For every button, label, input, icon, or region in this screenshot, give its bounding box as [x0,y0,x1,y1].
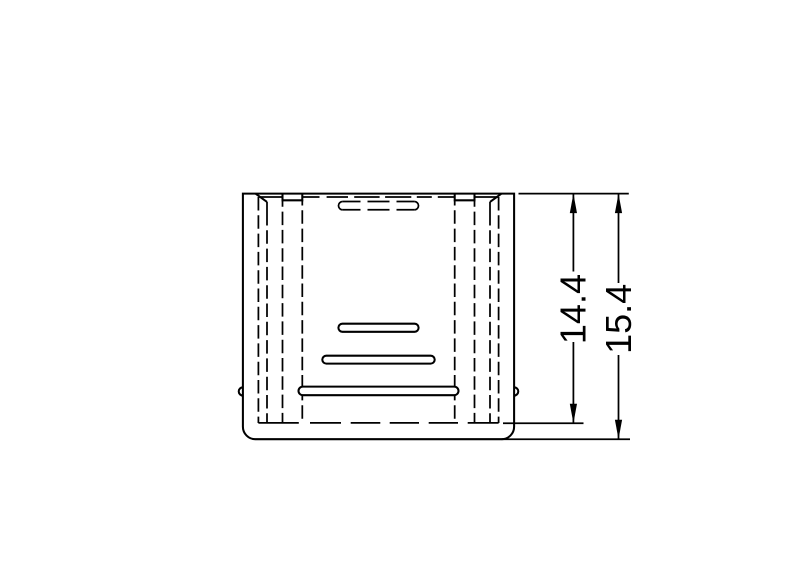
svg-text:15.4: 15.4 [598,284,639,354]
svg-text:14.4: 14.4 [553,274,594,344]
